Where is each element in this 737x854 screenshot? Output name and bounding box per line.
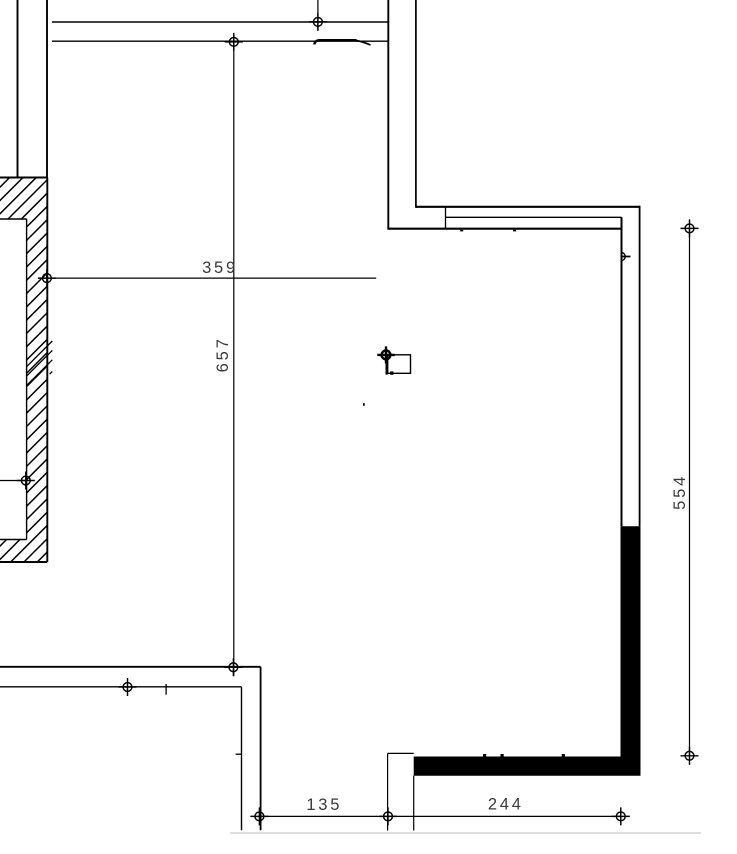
svg-text:135: 135 [306,796,342,814]
svg-text:657: 657 [214,336,232,372]
svg-text:554: 554 [671,474,689,510]
svg-text:244: 244 [488,796,524,814]
svg-text:359: 359 [202,259,238,277]
